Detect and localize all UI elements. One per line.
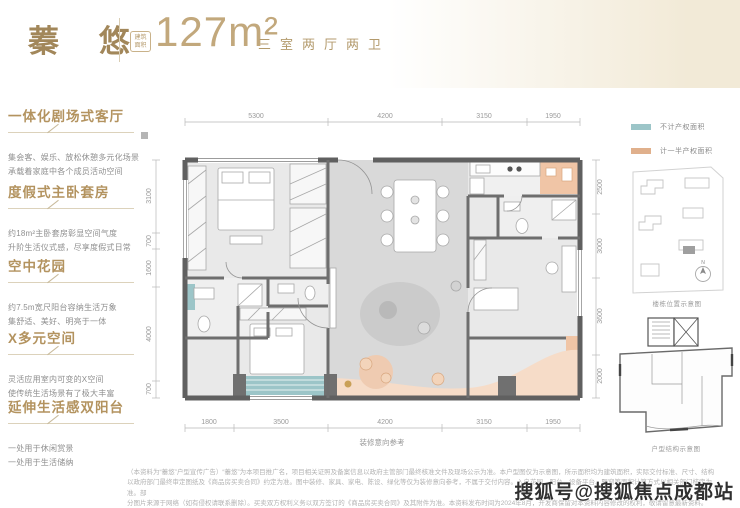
unit-outline: [620, 348, 732, 432]
unit-structure-caption: 户型结构示意图: [611, 443, 740, 453]
legend: 不计产权面积 计一半产权面积: [631, 122, 713, 170]
dim-left-1: 3100: [146, 188, 153, 204]
legend-swatch-teal: [631, 124, 651, 130]
balcony-column: [233, 374, 246, 398]
dim-right-2: 3000: [597, 238, 604, 254]
platform-fixture: [562, 168, 572, 181]
unit-structure-diagram: [612, 314, 740, 440]
section-divider: [8, 132, 142, 142]
section-line1: 约7.5m宽尺阳台容纳生活万象: [8, 303, 117, 312]
dim-bottom-3: 4200: [377, 419, 393, 426]
header-divider: [119, 18, 120, 62]
section-heading: 一体化剧场式客厅: [8, 105, 142, 125]
scale-marker: [141, 132, 148, 139]
section-heading: X多元空间: [8, 327, 142, 347]
dim-left-4: 4000: [146, 326, 153, 342]
dim-bottom-1: 1800: [201, 419, 217, 426]
dim-top-1: 5300: [248, 113, 264, 120]
section-divider: [8, 208, 142, 218]
floorplan-poster: 蓁 悠 建筑 面积 127m² 三室两厅两卫 一体化剧场式客厅 集会客、娱乐、放…: [0, 0, 740, 508]
plan-caption: 装修意向参考: [360, 437, 405, 447]
section-line1: 灵活应用室内可变的X空间: [8, 375, 104, 384]
feature-section-balcony: 延伸生活感双阳台 一处用于休闲赏景 一处用于生活储纳: [8, 396, 142, 470]
dim-bottom-4: 3150: [476, 419, 492, 426]
balcony-column: [324, 374, 337, 398]
dim-right-4: 2000: [597, 368, 604, 384]
header-gradient-band: [388, 0, 740, 88]
dim-right-1: 2500: [597, 179, 604, 195]
balcony-column: [498, 376, 516, 396]
legend-swatch-peach: [631, 148, 651, 154]
section-line1: 一处用于休闲赏景: [8, 444, 74, 453]
view-balcony-teal: [237, 376, 333, 396]
feature-section-master: 度假式主卧套房 约18m²主卧套房彰显空间气度 升阶生活仪式感，尽享度假式日常: [8, 181, 142, 255]
legend-item: 计一半产权面积: [631, 146, 713, 156]
dim-left-2: 700: [146, 235, 153, 247]
feature-section-garden: 空中花园 约7.5m宽尺阳台容纳生活万象 集舒适、美好、明亮于一体: [8, 255, 142, 329]
dim-bottom-5: 1950: [545, 419, 561, 426]
dim-top-3: 3150: [476, 113, 492, 120]
section-line1: 集会客、娱乐、放松休憩多元化场景: [8, 153, 139, 162]
legend-label: 计一半产权面积: [660, 146, 713, 156]
feature-section-living: 一体化剧场式客厅 集会客、娱乐、放松休憩多元化场景 承载着家庭中各个成员活动空间: [8, 105, 142, 179]
section-line2: 集舒适、美好、明亮于一体: [8, 317, 106, 326]
dim-top-2: 4200: [377, 113, 393, 120]
watermark: 搜狐号@搜狐焦点成都站: [514, 477, 734, 504]
dim-left-5: 700: [146, 383, 153, 395]
section-heading: 延伸生活感双阳台: [8, 396, 142, 416]
unit-title: 蓁 悠: [28, 16, 146, 61]
section-heading: 空中花园: [8, 255, 142, 275]
feature-section-xspace: X多元空间 灵活应用室内可变的X空间 使传统生活场景有了极大丰富: [8, 327, 142, 401]
legend-item: 不计产权面积: [631, 122, 713, 132]
dim-bottom-2: 3500: [273, 419, 289, 426]
section-line2: 升阶生活仪式感，尽享度假式日常: [8, 243, 131, 252]
dim-top-4: 1950: [545, 113, 561, 120]
platform-fixture: [546, 168, 556, 176]
dim-left-3: 1600: [146, 260, 153, 276]
section-divider: [8, 423, 142, 433]
section-line2: 一处用于生活储纳: [8, 458, 74, 467]
legend-label: 不计产权面积: [660, 122, 705, 132]
site-plan-diagram: N: [623, 164, 737, 296]
section-divider: [8, 282, 142, 292]
north-label: N: [701, 260, 705, 266]
badge-line2: 面积: [131, 42, 150, 50]
floor-plan: 5300 4200 3150 1950 1800 3500 4200 3150 …: [138, 88, 618, 448]
section-line2: 承载着家庭中各个成员活动空间: [8, 167, 123, 176]
section-line1: 约18m²主卧套房彰显空间气度: [8, 229, 117, 238]
building-area-badge: 建筑 面积: [130, 31, 151, 52]
section-divider: [8, 354, 142, 364]
highlighted-building: [683, 246, 695, 254]
dim-right-3: 3600: [597, 308, 604, 324]
site-plan-caption: 楼栋位置示意图: [615, 298, 739, 308]
badge-line1: 建筑: [131, 34, 150, 42]
room-layout-label: 三室两厅两卫: [258, 34, 390, 53]
section-heading: 度假式主卧套房: [8, 181, 142, 201]
